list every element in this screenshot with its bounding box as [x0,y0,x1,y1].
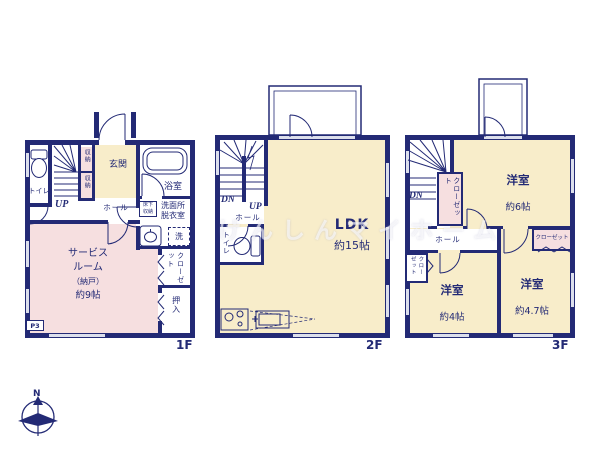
compass-icon [18,396,58,436]
bathtub-icon [143,148,187,174]
stairs-3f-icon [408,140,446,199]
washbasin-icon [140,226,161,246]
service-door-arc [108,222,128,244]
kitchen-stove-icon [221,309,248,330]
bath-door-arc [142,174,164,196]
room47-door-arc [504,229,528,253]
balcony-2f [269,86,361,135]
washroom-door-arc [117,207,137,227]
floorplan-sheet: 床下 収納 洗 P3 トイレ UP 収納 収納 玄関 ホール 浴室 洗面所 脱衣… [0,0,600,449]
kitchen-sink-icon [250,311,315,330]
door-arcs [30,114,528,273]
watermark-text: けんしんマイホーム [218,211,505,245]
toilet-door-arc-1f [30,206,48,224]
room4-door-arc [440,253,460,273]
toilet-icon-1f [31,150,47,178]
entrance-door-arc [99,114,125,140]
stairs-2f-icon [220,140,264,196]
stairs-1f-icon [54,145,78,196]
compass-north-label: N [33,389,41,400]
closet-door-chevrons [158,247,570,325]
balcony-3f [479,79,527,135]
